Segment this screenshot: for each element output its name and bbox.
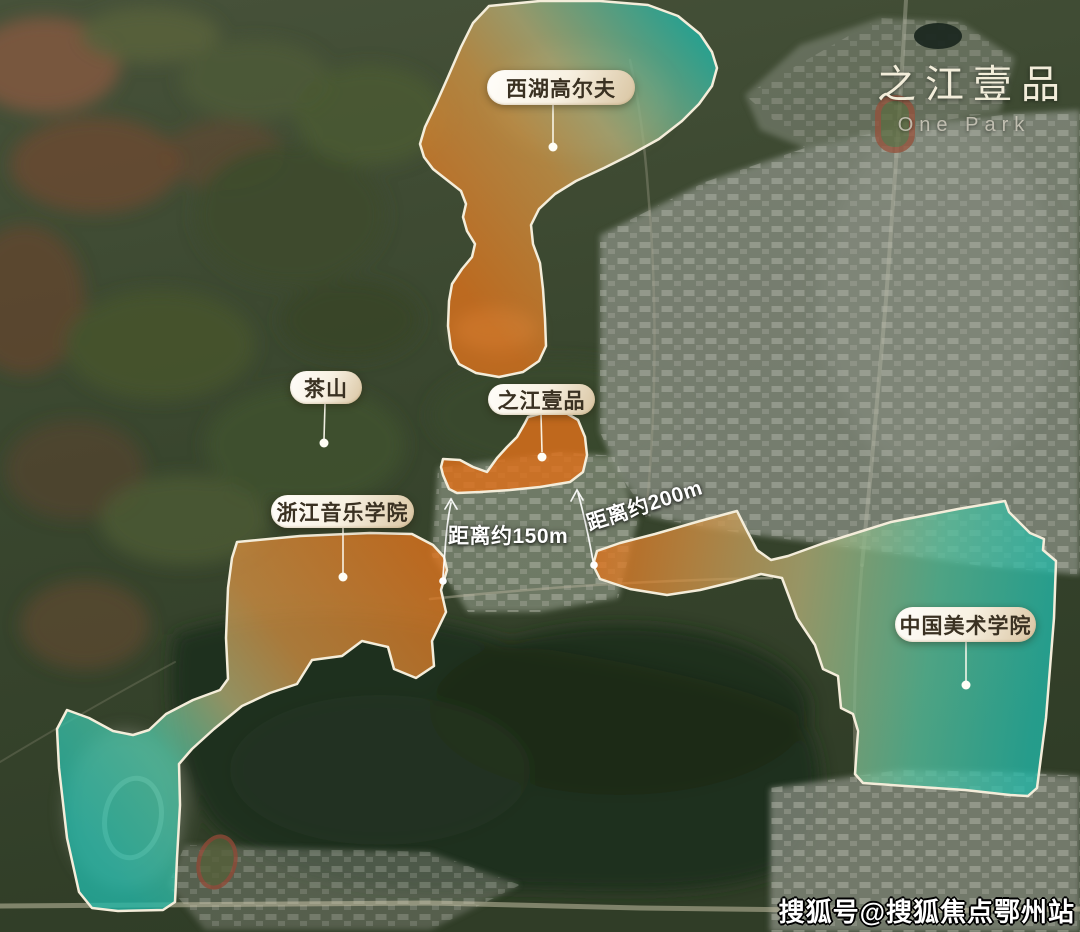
logo-title: 之江壹品 [877, 54, 1054, 110]
label-west-lake-golf-text: 西湖高尔夫 [506, 73, 616, 103]
label-one-park: 之江壹品 [488, 384, 595, 415]
logo: 之江壹品 One Park [868, 54, 1054, 137]
distance-label-150m: 距离约150m [448, 520, 568, 550]
logo-subtitle: One Park [874, 114, 1054, 137]
label-art-academy-text: 中国美术学院 [900, 610, 1032, 640]
satellite-map [0, 0, 1080, 932]
promo-map: 西湖高尔夫 茶山 之江壹品 浙江音乐学院 中国美术学院 距离约150m 距离约2… [0, 0, 1080, 932]
pond [914, 23, 962, 49]
label-music-academy: 浙江音乐学院 [271, 495, 414, 528]
label-one-park-text: 之江壹品 [498, 385, 586, 415]
label-west-lake-golf: 西湖高尔夫 [487, 70, 635, 105]
watermark: 搜狐号@搜狐焦点鄂州站 [779, 892, 1075, 929]
label-music-academy-text: 浙江音乐学院 [277, 497, 409, 527]
label-tea-mountain: 茶山 [290, 371, 362, 404]
label-art-academy: 中国美术学院 [895, 607, 1036, 642]
label-tea-mountain-text: 茶山 [304, 373, 348, 403]
